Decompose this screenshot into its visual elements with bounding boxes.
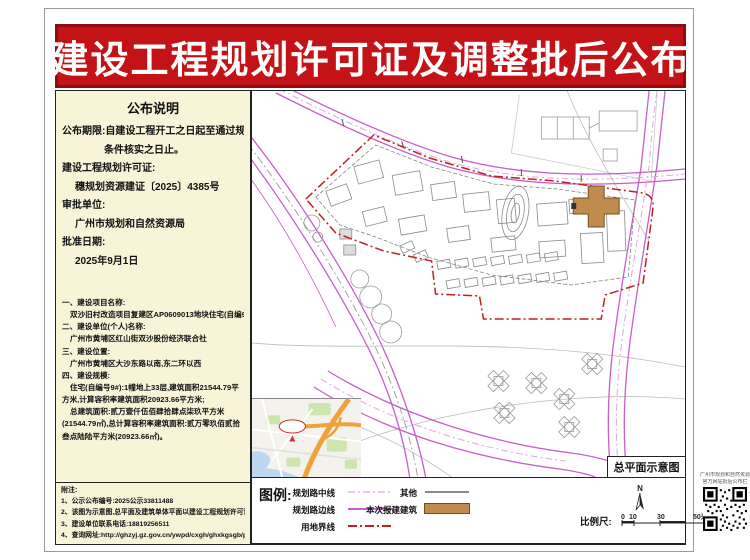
note-item: 4、查询网址:http://ghzyj.gz.gov.cn/ywpd/cxgh/… [61,530,245,541]
scale-value-1: 住宅(自编号9#):1幢地上33层,建筑面积21544.79平方米,计算容积率建… [62,382,244,406]
building-limit-line [316,145,635,285]
scale-bar: 比例尺: 0 10 30 50米 [580,511,717,529]
qr-caption-line2: 官方网站批后公布栏 [700,479,750,486]
title-banner: 建设工程规划许可证及调整批后公布 [55,24,686,88]
legend-label-road-edge: 规划路边线 [273,504,335,516]
scale-label: 四、建设规模: [62,370,244,382]
plan-caption: 总平面示意图 [607,456,685,477]
info-panel: 公布说明 公布期限:自建设工程开工之日起至通过规划 条件核实之日止。 建设工程规… [55,90,251,545]
permit-number: 穗规划资源建证〔2025〕4385号 [62,179,244,198]
north-compass-icon: N [630,483,650,513]
approver-name: 广州市规划和自然资源局 [62,216,244,235]
legend-swatch-land-boundary [347,522,393,530]
page-title: 建设工程规划许可证及调整批后公布 [51,29,691,84]
note-item: 2、该图为示意图,总平面及建筑单体平面以建设工程规划许可证附图为准。 [61,507,245,518]
legend-label-other: 其他 [355,487,417,499]
notes-title: 附注: [61,485,245,496]
project-name-label: 一、建设项目名称: [62,297,244,309]
svg-text:N: N [637,484,643,493]
notes-section: 附注: 1、公示公布编号:2025公示33811488 2、该图为示意图,总平面… [56,482,250,544]
legend-label-land-boundary: 用地界线 [273,521,335,533]
legend-swatch-new-building [424,503,470,514]
inset-map-drawing [252,399,361,478]
svg-text:30: 30 [657,514,665,521]
note-item: 3、建设单位联系电话:18819256511 [61,519,245,530]
annex-buildings [399,230,567,292]
legend-label-road-centerline: 规划路中线 [273,487,335,499]
approver-label: 审批单位: [62,197,244,216]
neighbor-buildings-flowers [488,353,603,437]
inset-location-map [252,398,361,477]
parcel-line [511,95,657,181]
note-item: 1、公示公布编号:2025公示33811488 [61,496,245,507]
legend-bar: 图例: 规划路中线 规划路边线 用地界线 其他 本次报建建筑 N 比例尺: 0 … [251,477,686,545]
notice-period-line2: 条件核实之日止。 [62,142,244,161]
project-name: 双沙旧村改造项目复建区AP0609013地块住宅(自编9#) [62,309,244,321]
qr-block: 广州市规划和自然资源局 官方网站批后公布栏 [700,472,750,536]
legend-swatch-other [424,488,470,496]
notice-period-line1: 公布期限:自建设工程开工之日起至通过规划 [62,123,244,142]
scale-bar-label: 比例尺: [580,514,612,528]
qr-caption-line1: 广州市规划和自然资源局 [700,472,750,479]
scale-value-2: 总建筑面积:贰万壹仟伍佰肆拾肆点柒玖平方米(21544.79㎡),总计算容积率建… [62,406,244,442]
approval-date: 2025年9月1日 [62,253,244,272]
approval-date-label: 批准日期: [62,234,244,253]
location-value: 广州市黄埔区大沙东路以南,东二环以西 [62,358,244,370]
location-label: 三、建设位置: [62,346,244,358]
project-section: 一、建设项目名称: 双沙旧村改造项目复建区AP0609013地块住宅(自编9#)… [62,297,244,443]
notice-section: 公布说明 公布期限:自建设工程开工之日起至通过规划 条件核实之日止。 建设工程规… [62,98,244,271]
notice-title: 公布说明 [62,98,244,117]
builder-name: 广州市黄埔区红山街双沙股份经济联合社 [62,333,244,345]
svg-text:0: 0 [621,514,625,521]
svg-text:10: 10 [629,514,637,521]
builder-label: 二、建设单位(个人)名称: [62,321,244,333]
qr-code [703,487,747,531]
legend-label-new-building: 本次报建建筑 [355,504,417,516]
site-plan-area: 总平面示意图 [251,90,686,478]
permit-label: 建设工程规划许可证: [62,160,244,179]
neighbor-buildings-topright [541,111,637,161]
